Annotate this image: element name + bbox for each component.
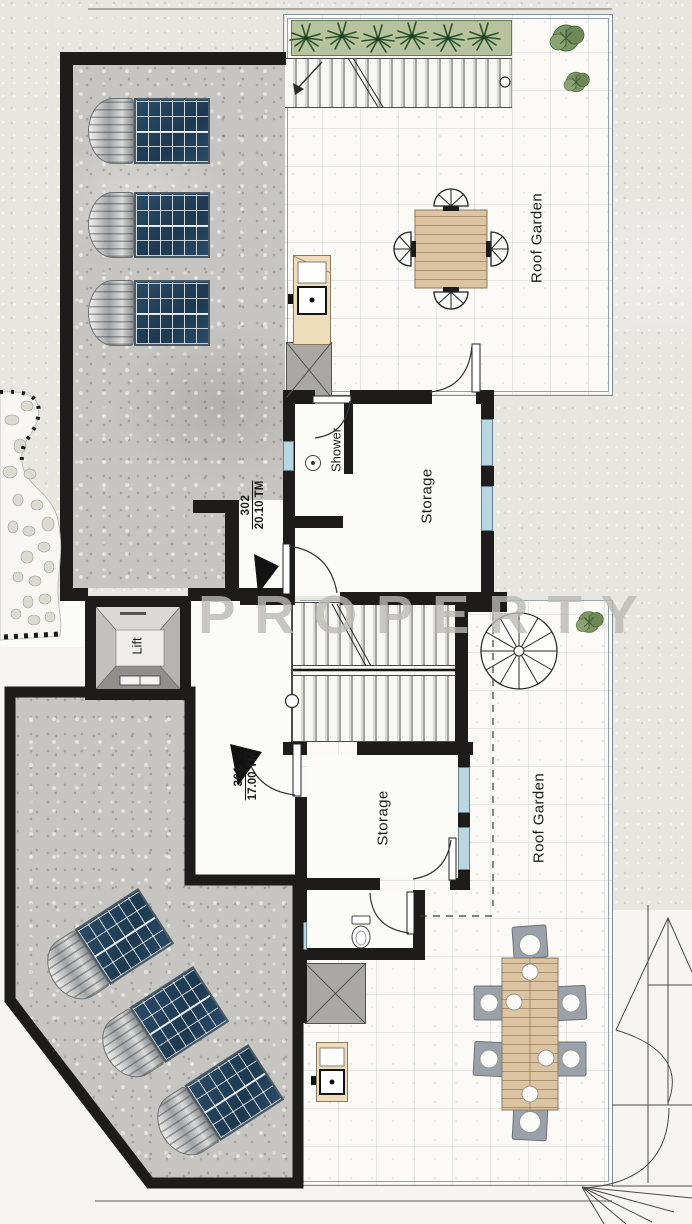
lounger-canopy-icon <box>88 280 134 346</box>
lounger-canopy-icon <box>88 98 134 164</box>
lounger-mat-icon <box>134 98 210 164</box>
window-icon <box>481 419 493 466</box>
wall <box>413 890 425 950</box>
wall <box>458 813 470 827</box>
wall <box>455 601 468 755</box>
shaft-lower <box>305 963 366 1024</box>
sheet-frame-line-bottom <box>95 1200 612 1202</box>
unit-number: 302 <box>240 495 252 516</box>
wall <box>350 390 432 404</box>
sun-lounger <box>88 280 210 346</box>
unit-301-lobby <box>190 601 295 882</box>
wall <box>344 402 353 474</box>
floor-plan-sheet: { "plan": { "watermark": "PROPERTY", "ro… <box>0 0 692 1224</box>
counter-upper <box>293 255 331 345</box>
wall <box>295 742 307 754</box>
wall <box>60 52 73 601</box>
room-storage-upper <box>295 396 482 596</box>
lounger-canopy-icon <box>88 192 134 258</box>
unit-area: 17.00 TM <box>245 752 259 801</box>
room-label-storage-lower: Storage <box>375 790 392 845</box>
lounger-mat-icon <box>134 192 210 258</box>
room-label-shower: Shower <box>329 428 344 472</box>
wall <box>295 960 307 1023</box>
unit-number: 301 <box>233 766 245 787</box>
unit-area: 20.10 TM <box>252 481 266 530</box>
sheet-frame-line-top <box>88 8 612 10</box>
unit-301-label: 301 17.00 TM <box>233 752 259 801</box>
wall <box>240 592 285 605</box>
wall <box>60 588 88 601</box>
paper-background-right <box>613 0 692 910</box>
wall <box>225 500 239 600</box>
wall <box>283 516 343 528</box>
main-stairs-upper-flight <box>293 602 455 666</box>
wall <box>450 878 470 890</box>
wall <box>481 466 494 486</box>
planter-box <box>291 20 512 56</box>
sun-lounger <box>88 98 210 164</box>
wall <box>295 948 425 960</box>
room-label-roof-garden-lower: Roof Garden <box>531 773 548 863</box>
main-stairs-lower-flight <box>293 675 455 742</box>
window-icon <box>283 441 294 471</box>
room-label-roof-garden-upper: Roof Garden <box>529 193 546 283</box>
window-icon <box>458 827 470 870</box>
lounger-mat-icon <box>134 280 210 346</box>
sun-lounger <box>88 192 210 258</box>
counter-lower <box>316 1042 348 1102</box>
wall <box>283 390 295 605</box>
stair-side-line <box>291 602 293 742</box>
window-icon <box>481 486 493 531</box>
window-icon <box>297 922 307 950</box>
wall <box>295 878 380 890</box>
window-icon <box>458 767 470 813</box>
room-label-lift: Lift <box>130 637 145 654</box>
unit-302-label: 302 20.10 TM <box>240 481 266 530</box>
wall <box>60 52 286 65</box>
room-label-storage-upper: Storage <box>419 468 436 523</box>
straight-stairs-upper <box>285 58 512 108</box>
room-wc <box>307 890 413 948</box>
wall <box>458 755 470 767</box>
wall <box>481 395 494 419</box>
left-walkway <box>0 600 85 647</box>
